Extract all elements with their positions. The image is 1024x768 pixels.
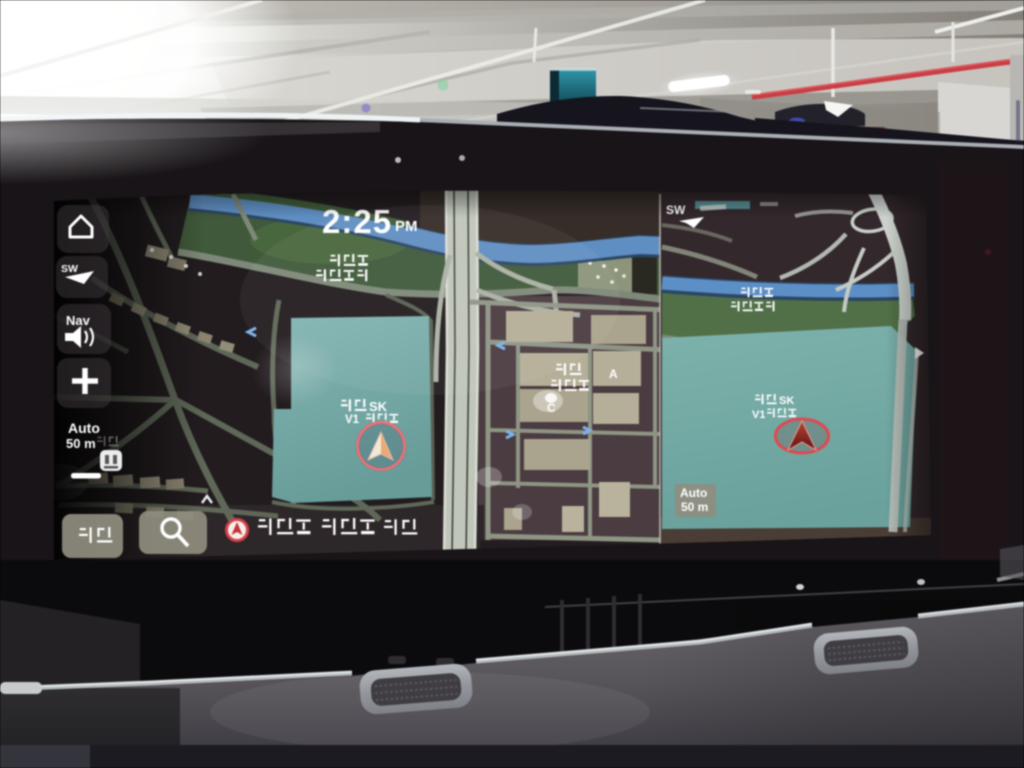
svg-text:SK: SK [779, 395, 794, 407]
svg-text:Auto: Auto [68, 420, 100, 436]
svg-text:V1: V1 [752, 409, 765, 421]
svg-text:SK: SK [369, 399, 388, 414]
svg-text:V1: V1 [345, 414, 360, 426]
svg-text:50 m: 50 m [681, 500, 708, 514]
svg-text:SW: SW [61, 263, 78, 275]
svg-text:A: A [609, 367, 618, 381]
svg-text:Nav: Nav [66, 313, 91, 328]
svg-text:Auto: Auto [680, 486, 707, 500]
svg-text:50 m: 50 m [66, 436, 96, 451]
